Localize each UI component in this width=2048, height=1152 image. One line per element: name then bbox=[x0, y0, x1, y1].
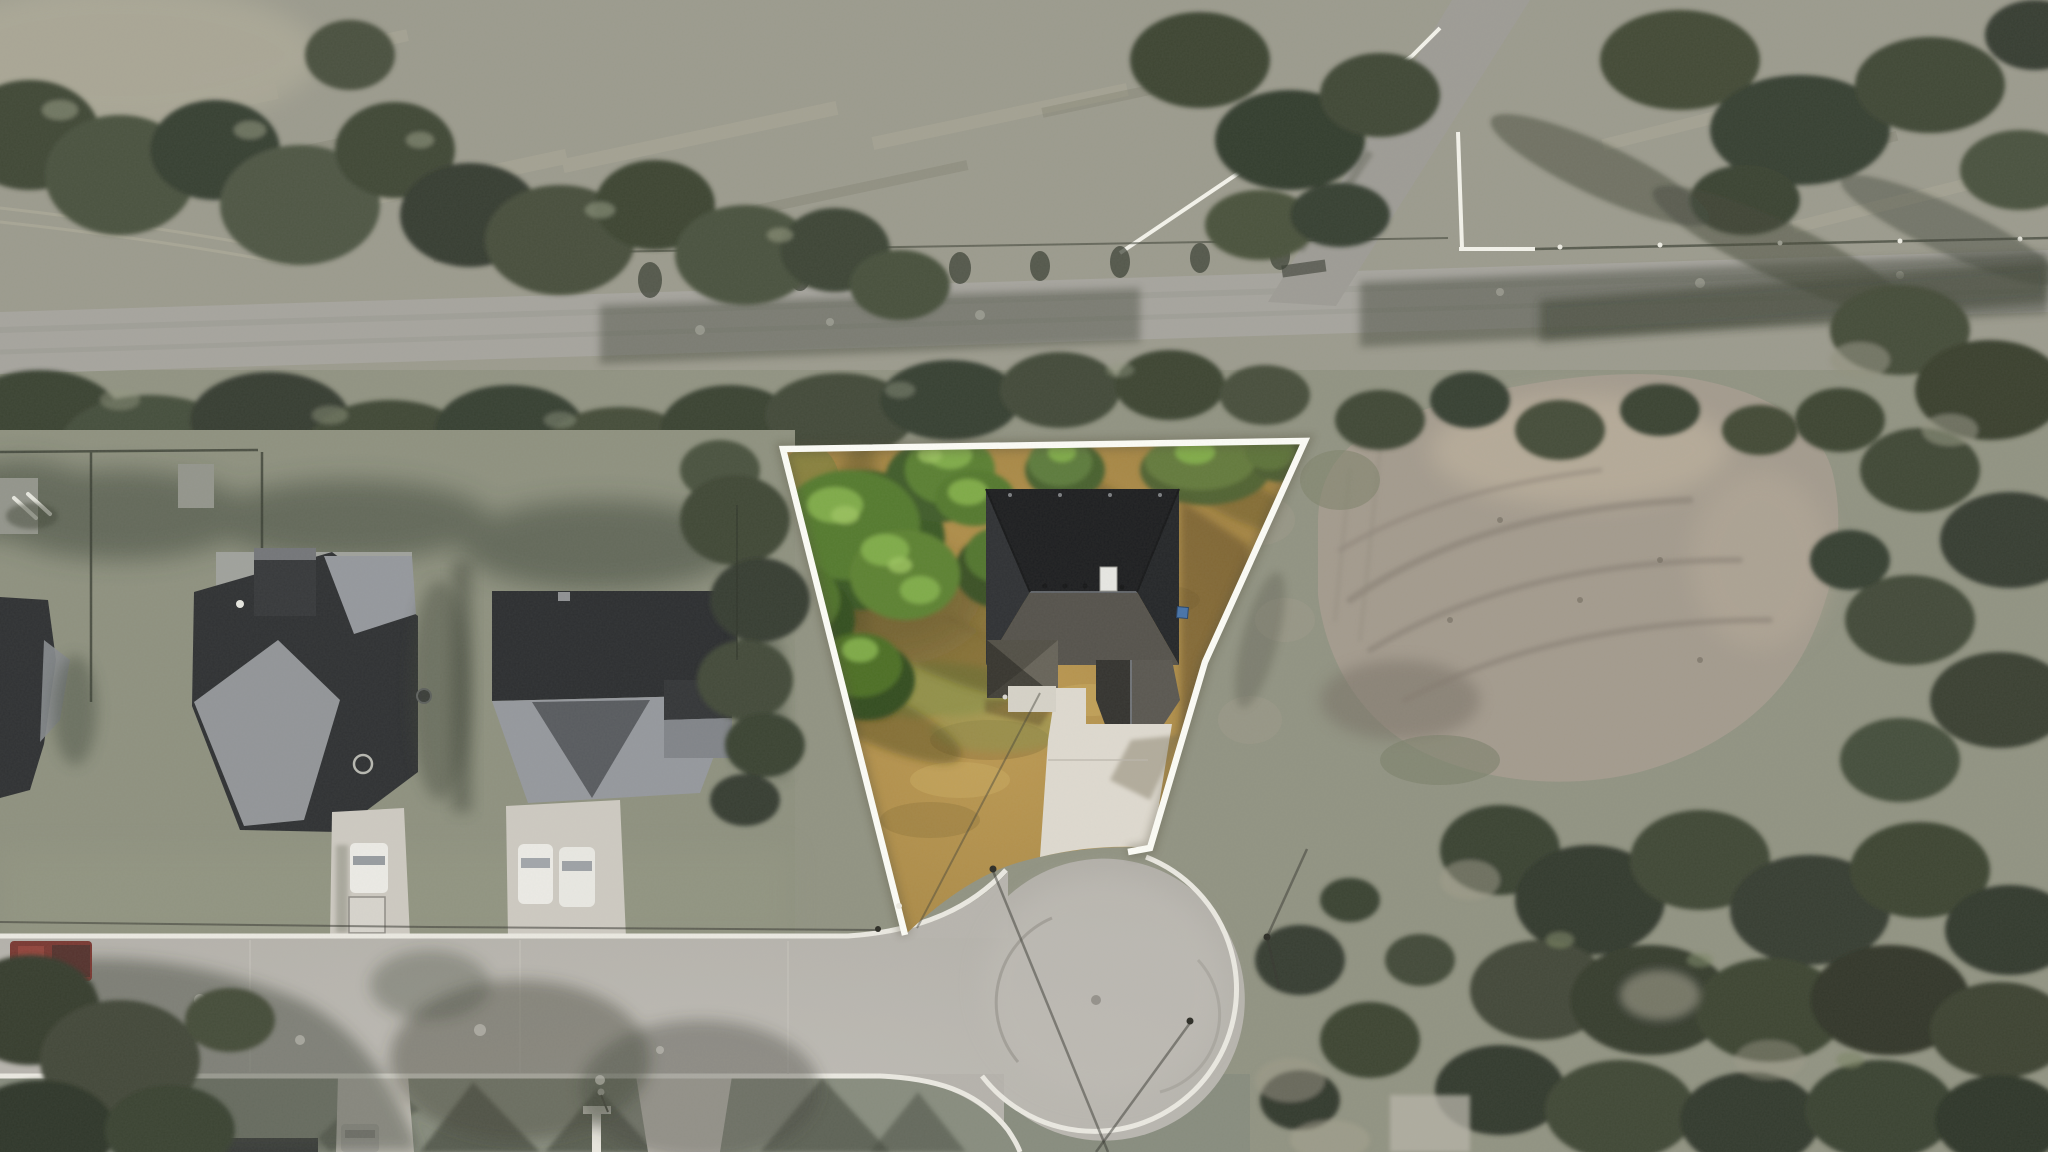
aerial-photo bbox=[0, 0, 2048, 1152]
aerial-photo-viewport bbox=[0, 0, 2048, 1152]
film-grain-overlay bbox=[0, 0, 2048, 1152]
